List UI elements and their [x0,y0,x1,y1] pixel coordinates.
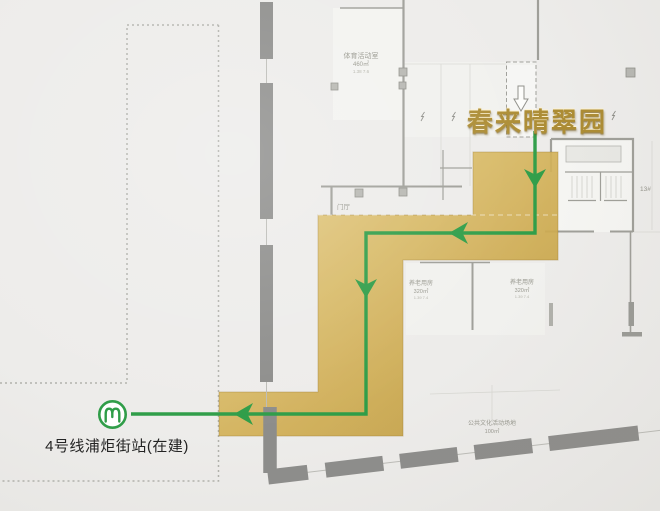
site-route-map: 体育活动室 460㎡ 1.38 7.6 门厅 养老用房 320㎡ 1.39 7.… [0,0,660,511]
room-name: 体育活动室 [344,53,379,62]
room-label-public-ground: 公共文化活动场地 100㎡ [468,421,516,435]
room-label-elderly-left: 养老用房 320㎡ 1.39 7.4 [409,281,433,300]
room-name: 公共文化活动场地 [468,421,516,429]
room-note: 1.39 7.4 [510,294,534,299]
room-note: 1.38 7.6 [344,69,379,75]
room-area: 460㎡ [344,62,379,70]
metro-logo-icon [99,401,125,427]
destination-title: 春来晴翠园 [467,102,607,139]
room-label-sports: 体育活动室 460㎡ 1.38 7.6 [344,53,379,75]
room-note: 1.39 7.4 [409,295,433,300]
room-area: 100㎡ [468,429,516,436]
room-name: 养老用房 [409,281,433,289]
station-label: 4号线浦炬街站(在建) [45,435,189,456]
room-label-lobby: 门厅 [337,201,350,211]
room-name: 养老用房 [510,280,534,288]
room-label-elderly-right: 养老用房 320㎡ 1.39 7.4 [510,280,534,299]
room-area: 320㎡ [409,289,433,296]
room-area: 320㎡ [510,288,534,295]
building-number-label: 13# [640,186,651,193]
